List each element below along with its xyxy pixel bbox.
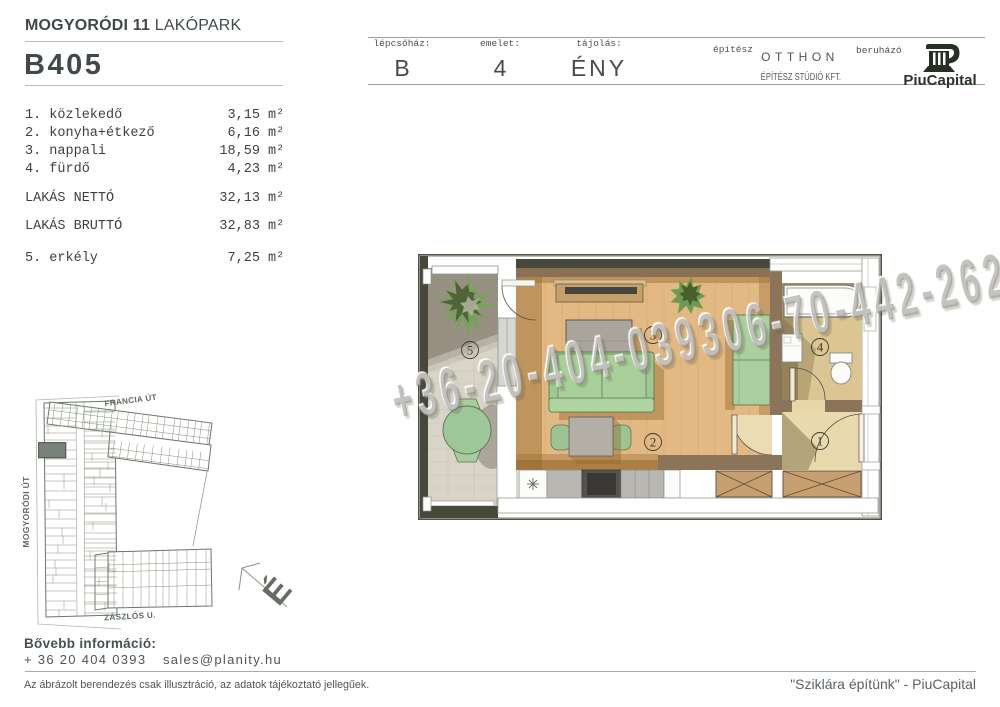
svg-text:2: 2 (650, 435, 657, 450)
svg-text:É: É (256, 571, 300, 613)
svg-text:FRANCIA ÚT: FRANCIA ÚT (104, 391, 158, 409)
svg-text:1: 1 (817, 434, 824, 449)
svg-text:MOGYORÓDI ÚT: MOGYORÓDI ÚT (20, 476, 31, 548)
svg-text:PiuCapital: PiuCapital (903, 72, 976, 89)
